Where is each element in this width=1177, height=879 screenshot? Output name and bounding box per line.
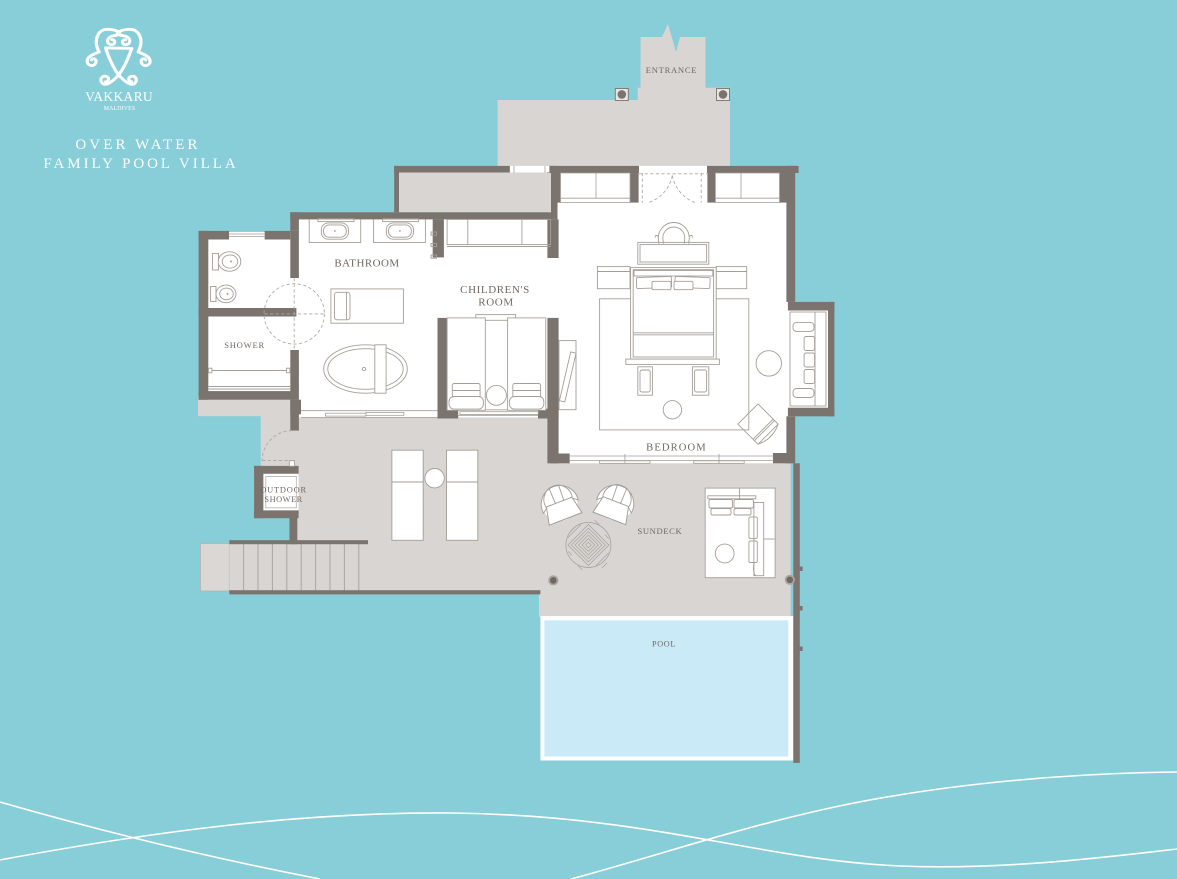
svg-text:ENTRANCE: ENTRANCE bbox=[646, 65, 697, 75]
svg-text:ROOM: ROOM bbox=[478, 297, 513, 309]
svg-text:FAMILY POOL VILLA: FAMILY POOL VILLA bbox=[43, 156, 238, 172]
svg-text:BATHROOM: BATHROOM bbox=[334, 258, 399, 270]
svg-text:SHOWER: SHOWER bbox=[224, 340, 265, 350]
svg-text:CHILDREN'S: CHILDREN'S bbox=[460, 284, 530, 296]
svg-text:MALDIVES: MALDIVES bbox=[104, 106, 136, 112]
svg-text:BEDROOM: BEDROOM bbox=[646, 443, 707, 454]
svg-text:OVER WATER: OVER WATER bbox=[75, 137, 200, 153]
svg-text:SUNDECK: SUNDECK bbox=[638, 526, 683, 536]
svg-text:POOL: POOL bbox=[652, 640, 676, 649]
svg-text:SHOWER: SHOWER bbox=[264, 495, 302, 504]
svg-text:OUTDOOR: OUTDOOR bbox=[260, 486, 307, 495]
svg-text:VAKKARU: VAKKARU bbox=[85, 89, 153, 104]
